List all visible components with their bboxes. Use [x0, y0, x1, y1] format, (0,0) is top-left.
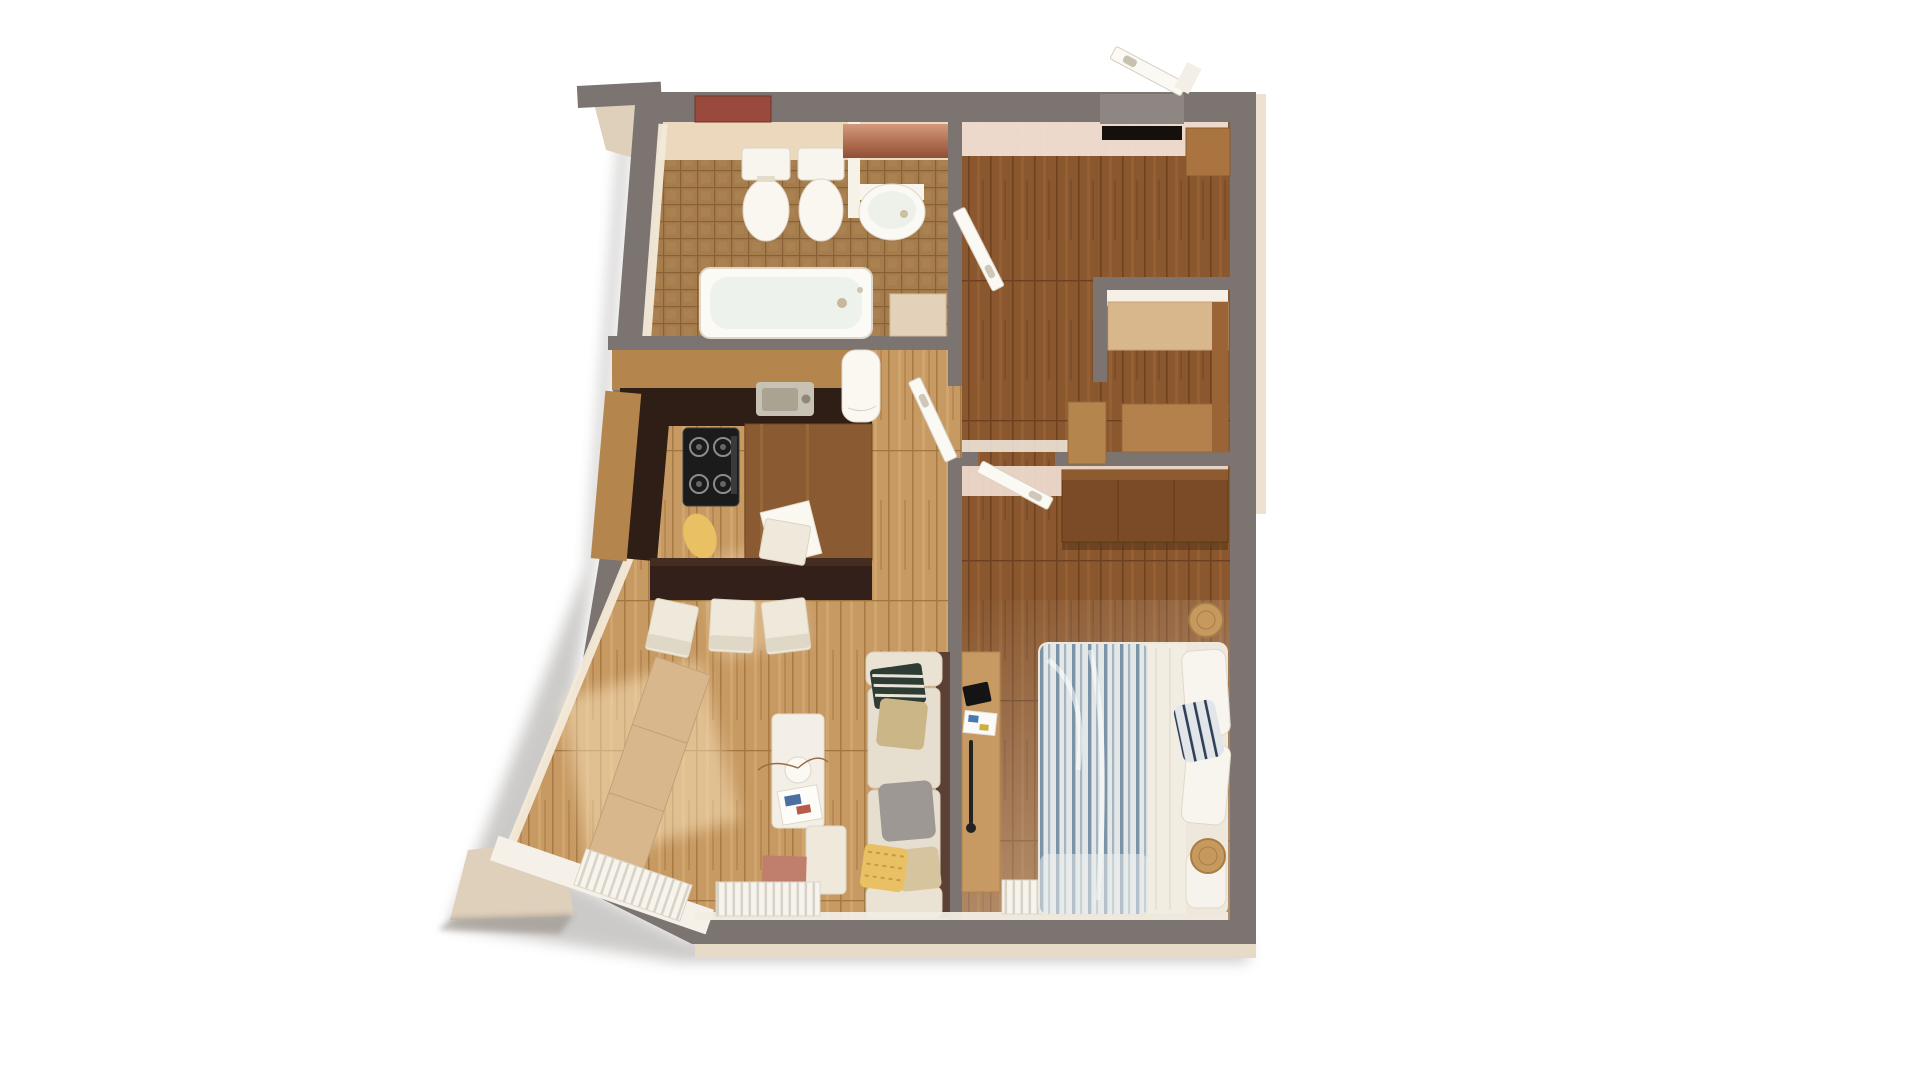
yellow-patterned-pillow: [859, 843, 909, 893]
entrance-doorway: [1100, 94, 1184, 124]
bathroom-cabinet: [890, 294, 946, 336]
floor-plan-stage: [0, 0, 1920, 1080]
closet-upper-counter: [1108, 302, 1228, 350]
wall-bathroom-right: [948, 122, 962, 350]
white-sheet-fold: [1148, 644, 1186, 914]
double-bed: [1038, 642, 1231, 916]
foot-blanket: [1040, 854, 1148, 914]
magazines: [963, 710, 997, 735]
wall-divider-lower: [948, 458, 962, 920]
dining-bar-sheen: [650, 558, 872, 566]
kitchen-sink: [756, 382, 814, 416]
toilet: [742, 148, 790, 241]
corridor-cabinet: [1068, 402, 1106, 464]
wall-hall-bedroom-left: [962, 452, 978, 466]
shoe-cabinet: [1186, 128, 1230, 176]
black-doormat: [1102, 126, 1182, 140]
round-wood-stool-top: [1189, 603, 1223, 637]
copper-cabinet-row: [843, 124, 948, 158]
white-dining-chair-2: [709, 599, 756, 653]
wall-hung-sink: [859, 184, 925, 240]
bathtub: [700, 268, 872, 338]
bidet-toilet: [798, 148, 844, 241]
wall-divider-upper: [948, 350, 962, 386]
floor-plan-render: [0, 0, 1920, 1080]
white-rounded-appliance: [842, 350, 880, 422]
wall-closet-left: [1093, 290, 1107, 382]
white-side-chair: [759, 518, 811, 565]
khaki-pillow: [876, 698, 929, 751]
magazine-tray: [777, 785, 822, 825]
entrance-door-open-outward: [1110, 46, 1202, 96]
wall-closet-top: [1093, 277, 1230, 290]
top-wall-vent: [695, 96, 771, 122]
walnut-wardrobe: [1062, 470, 1228, 550]
wood-desk: [962, 652, 1000, 892]
black-floor-lamp: [969, 740, 973, 824]
kitchen-upper-cabinet-run: [612, 350, 872, 390]
right-outer-ledge: [1256, 94, 1266, 514]
round-wood-stool-bottom: [1191, 839, 1225, 873]
beige-sectional-sofa: [859, 652, 950, 918]
white-dining-chair-3: [761, 598, 811, 655]
gray-pillow: [878, 780, 937, 842]
gas-hob: [683, 428, 739, 506]
radiator-living-bottom: [716, 882, 820, 916]
closet-side-panel: [1212, 302, 1228, 452]
bottom-outer-ledge: [695, 944, 1256, 958]
